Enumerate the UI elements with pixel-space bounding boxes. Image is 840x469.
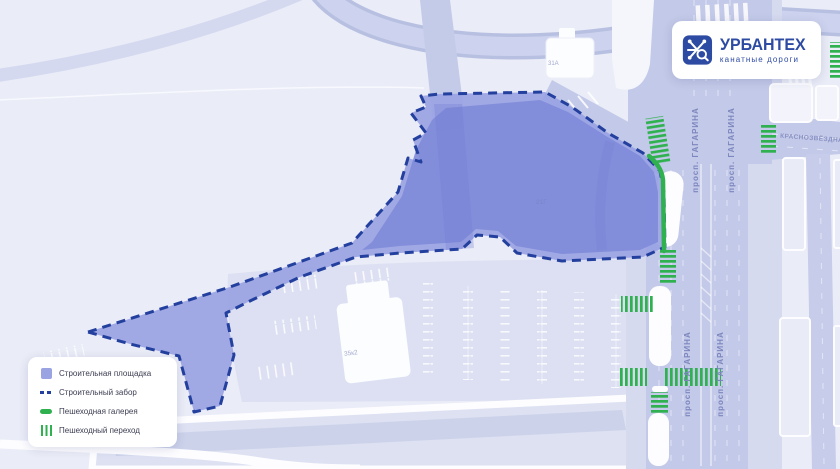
map-legend: Строительная площадка Строительный забор…	[28, 357, 177, 447]
construction-fence-swatch	[40, 387, 52, 399]
construction-site-swatch	[40, 368, 52, 380]
urbantech-logo-card: УРБАНТЕХ канатные дороги	[672, 21, 821, 79]
crossing-south-left	[619, 368, 647, 386]
legend-label: Строительная площадка	[59, 369, 151, 378]
legend-item-construction-site: Строительная площадка	[40, 368, 177, 380]
legend-item-construction-fence: Строительный забор	[40, 387, 177, 399]
crossing-mid	[660, 250, 676, 285]
building-label-21g: 21Г	[536, 199, 547, 206]
crossing-west	[621, 296, 653, 312]
legend-item-pedestrian-crossing: Пешеходный переход	[40, 425, 177, 437]
crossing-far-right	[830, 42, 840, 78]
street-label-gagarina-2: просп. ГАГАРИНА	[727, 95, 739, 205]
crossing-krasnozvezdnaya	[761, 123, 776, 153]
legend-label: Пешеходный переход	[59, 426, 140, 435]
legend-label: Строительный забор	[59, 388, 137, 397]
street-label-gagarina-1: просп. ГАГАРИНА	[691, 95, 703, 205]
street-label-gagarina-3: просп. ГАГАРИНА	[683, 319, 695, 429]
street-label-gagarina-4: просп. ГАГАРИНА	[716, 319, 728, 429]
logo-title: УРБАНТЕХ	[720, 36, 806, 53]
legend-item-pedestrian-gallery: Пешеходная галерея	[40, 406, 177, 418]
pedestrian-gallery-swatch	[40, 406, 52, 418]
pedestrian-crossing-swatch	[40, 425, 52, 437]
logo-subtitle: канатные дороги	[720, 56, 811, 64]
map-screenshot: просп. ГАГАРИНА просп. ГАГАРИНА просп. Г…	[0, 0, 840, 469]
urbantech-logo-icon	[682, 32, 713, 68]
legend-label: Пешеходная галерея	[59, 407, 138, 416]
crossing-south-island	[651, 392, 668, 414]
building-label-31a: 31А	[548, 61, 559, 67]
